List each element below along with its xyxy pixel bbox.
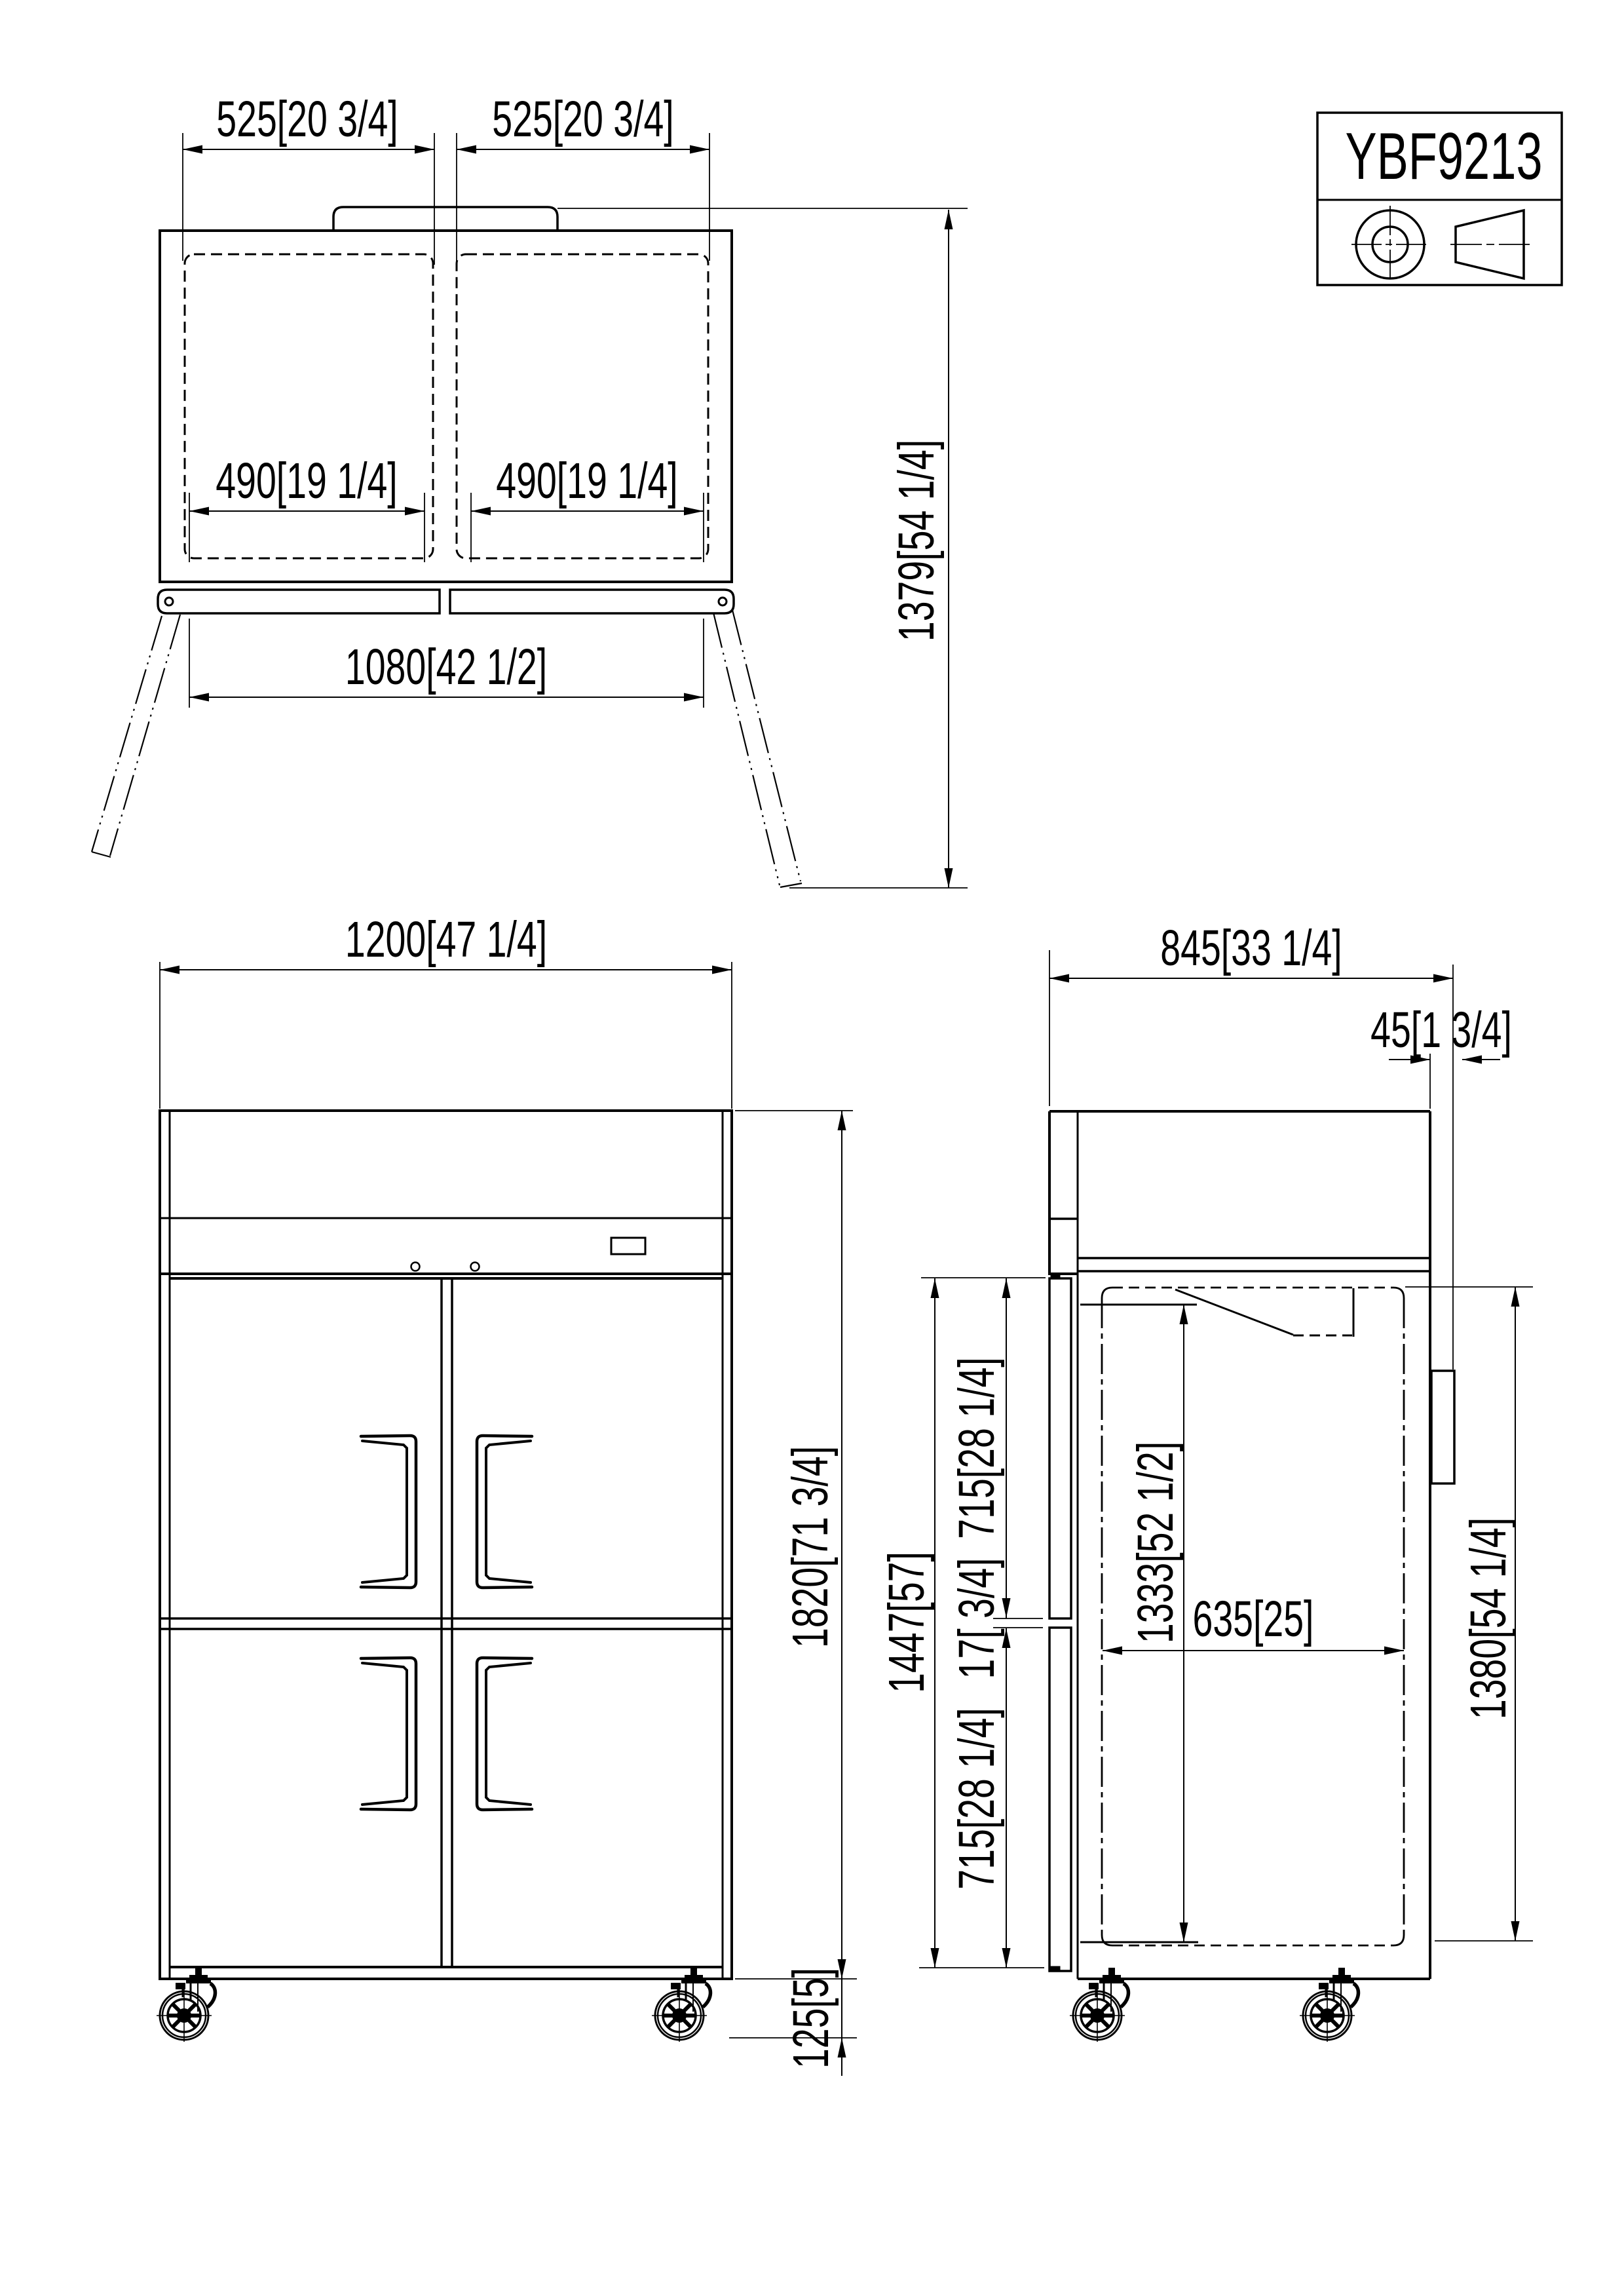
svg-text:1379[54 1/4]: 1379[54 1/4] (888, 440, 945, 641)
svg-text:45[1 3/4]: 45[1 3/4] (1370, 1002, 1512, 1058)
svg-text:490[19 1/4]: 490[19 1/4] (216, 453, 397, 509)
svg-text:635[25]: 635[25] (1193, 1591, 1314, 1647)
svg-text:YBF9213: YBF9213 (1345, 119, 1542, 193)
svg-text:715[28 1/4]: 715[28 1/4] (949, 1708, 1005, 1889)
svg-text:1200[47 1/4]: 1200[47 1/4] (345, 911, 547, 968)
svg-text:125[5]: 125[5] (783, 1968, 839, 2069)
svg-text:525[20 3/4]: 525[20 3/4] (492, 91, 673, 147)
svg-text:845[33 1/4]: 845[33 1/4] (1160, 920, 1342, 976)
svg-text:525[20 3/4]: 525[20 3/4] (216, 91, 398, 147)
svg-text:715[28 1/4]: 715[28 1/4] (949, 1357, 1005, 1539)
svg-text:490[19 1/4]: 490[19 1/4] (496, 453, 677, 509)
svg-text:1447[57]: 1447[57] (878, 1552, 935, 1693)
svg-text:1380[54 1/4]: 1380[54 1/4] (1460, 1518, 1517, 1719)
svg-text:1820[71 3/4]: 1820[71 3/4] (782, 1446, 839, 1648)
svg-text:1333[52 1/2]: 1333[52 1/2] (1127, 1442, 1184, 1643)
svg-text:1080[42 1/2]: 1080[42 1/2] (345, 639, 547, 695)
